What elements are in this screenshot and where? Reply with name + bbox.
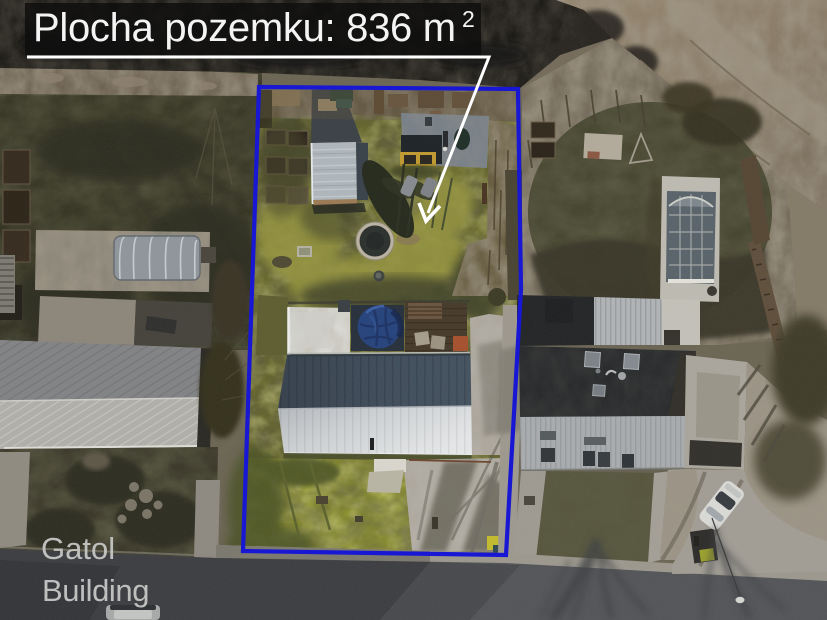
svg-text:Gatol: Gatol <box>41 531 115 566</box>
svg-text:Plocha pozemku: 836 m: Plocha pozemku: 836 m <box>33 6 456 50</box>
svg-text:Building: Building <box>42 573 149 608</box>
svg-text:2: 2 <box>462 6 475 32</box>
